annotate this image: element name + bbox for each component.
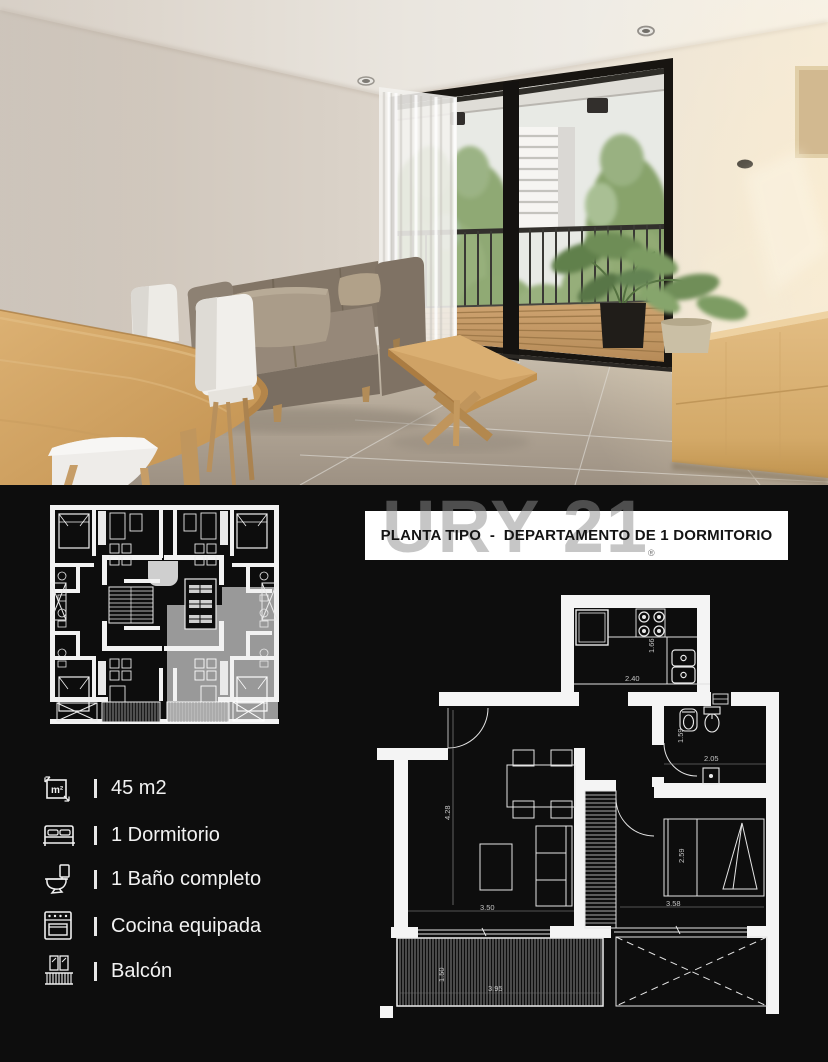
svg-text:3.95: 3.95	[488, 984, 503, 993]
svg-text:m²: m²	[51, 785, 64, 796]
svg-text:1.50: 1.50	[437, 967, 446, 982]
svg-text:2.59: 2.59	[677, 848, 686, 863]
svg-text:2.05: 2.05	[704, 754, 719, 763]
svg-text:4.28: 4.28	[443, 805, 452, 820]
svg-text:1.59: 1.59	[676, 728, 685, 743]
svg-text:1.66: 1.66	[647, 638, 656, 653]
svg-text:2.40: 2.40	[625, 674, 640, 683]
svg-text:3.50: 3.50	[480, 903, 495, 912]
svg-text:3.58: 3.58	[666, 899, 681, 908]
